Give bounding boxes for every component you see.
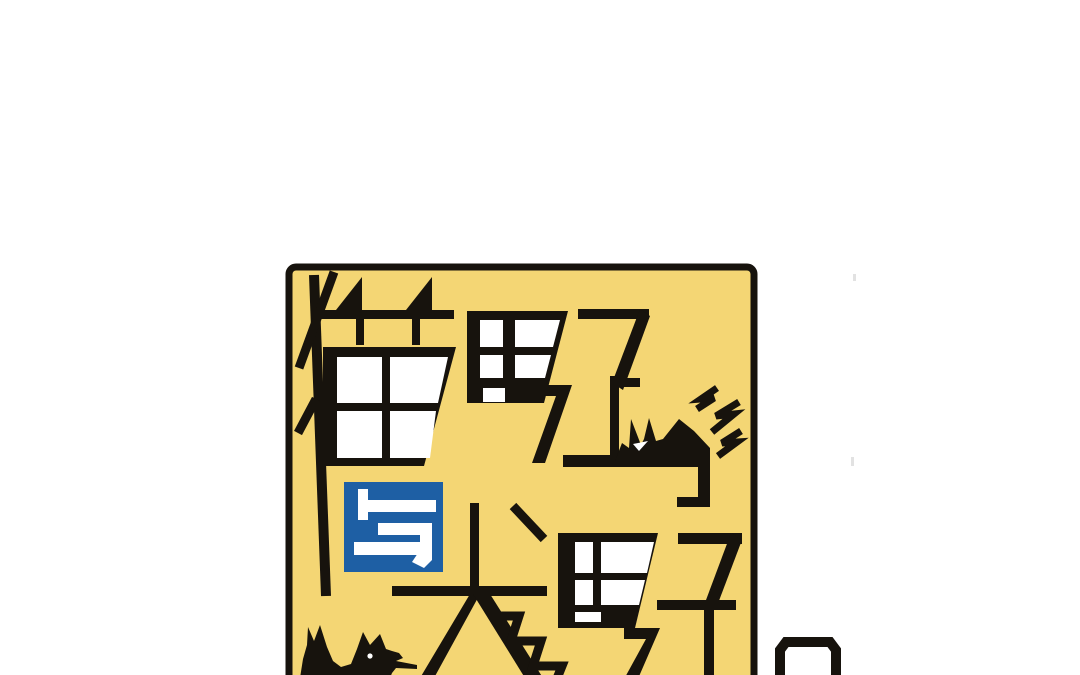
mao-grass-bar bbox=[313, 310, 454, 319]
faint-artifact-marks bbox=[851, 274, 856, 466]
zi-top-stem bbox=[610, 376, 619, 458]
zi-bottom-stem bbox=[704, 608, 714, 675]
dog-eye bbox=[367, 653, 372, 658]
partial-panel-glyph bbox=[780, 642, 836, 675]
mao-grass-tick-right bbox=[412, 319, 420, 345]
zi-top-nub bbox=[618, 378, 640, 387]
connector-square bbox=[344, 482, 443, 572]
zi-top-hook bbox=[677, 497, 710, 507]
comic-cover-art bbox=[0, 0, 1080, 675]
quan-cross-bar bbox=[392, 586, 547, 596]
page-background bbox=[0, 0, 1080, 675]
mao-grass-tick-left bbox=[356, 319, 364, 345]
zi-bottom-cross-bar bbox=[657, 600, 736, 610]
quan-stem-upper bbox=[470, 503, 479, 591]
